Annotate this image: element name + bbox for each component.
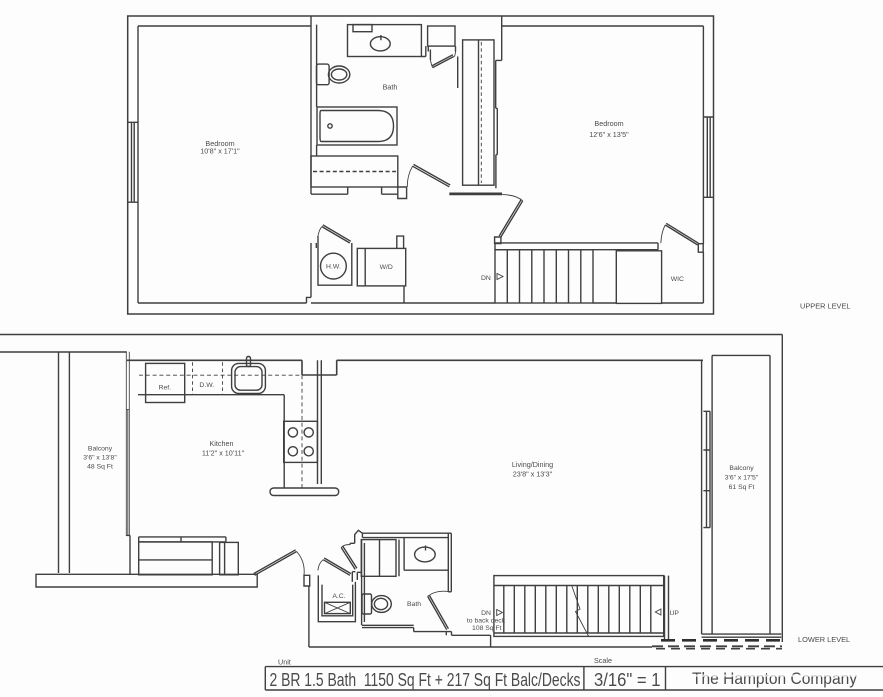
svg-text:Bath: Bath — [407, 601, 421, 608]
svg-text:3/16" = 1: 3/16" = 1 — [594, 669, 661, 690]
svg-text:Scale: Scale — [594, 656, 612, 665]
svg-text:The Hampton Company: The Hampton Company — [692, 670, 858, 688]
svg-text:108 Sq Ft: 108 Sq Ft — [472, 625, 502, 632]
svg-text:Unit: Unit — [278, 658, 291, 667]
svg-text:3'6" x 17'5": 3'6" x 17'5" — [725, 475, 759, 482]
svg-text:12'6" x 13'5": 12'6" x 13'5" — [589, 130, 629, 139]
svg-text:WIC: WIC — [671, 276, 684, 283]
svg-text:to back deck: to back deck — [467, 618, 506, 625]
svg-text:Living/Dining: Living/Dining — [512, 460, 553, 469]
svg-text:Balcony: Balcony — [729, 465, 754, 472]
svg-text:10'8" x 17'1": 10'8" x 17'1" — [200, 147, 240, 156]
svg-text:23'8" x 13'3": 23'8" x 13'3" — [513, 470, 553, 479]
svg-text:A.C.: A.C. — [332, 593, 345, 600]
svg-text:Kitchen: Kitchen — [210, 439, 234, 448]
svg-text:UPPER LEVEL: UPPER LEVEL — [800, 302, 851, 311]
svg-text:2 BR 1.5 Bath 1150 Sq Ft + 21: 2 BR 1.5 Bath 1150 Sq Ft + 217 Sq Ft Bal… — [270, 669, 581, 690]
svg-text:DN: DN — [481, 610, 491, 617]
svg-text:61 Sq Ft: 61 Sq Ft — [729, 484, 755, 491]
svg-text:48 Sq Ft: 48 Sq Ft — [87, 464, 113, 471]
svg-text:UP: UP — [670, 610, 680, 617]
svg-text:LOWER LEVEL: LOWER LEVEL — [798, 635, 850, 644]
svg-text:Bath: Bath — [383, 83, 398, 92]
svg-text:Ref.: Ref. — [159, 385, 172, 392]
svg-text:Balcony: Balcony — [88, 446, 113, 453]
svg-text:3'6" x 13'8": 3'6" x 13'8" — [83, 455, 117, 462]
svg-text:DN: DN — [481, 275, 491, 282]
svg-text:11'2" x 10'11": 11'2" x 10'11" — [202, 449, 245, 458]
svg-text:H.W.: H.W. — [326, 264, 341, 271]
svg-text:D.W.: D.W. — [199, 382, 214, 389]
svg-text:Bedroom: Bedroom — [594, 119, 623, 128]
svg-text:W/D: W/D — [380, 264, 393, 271]
